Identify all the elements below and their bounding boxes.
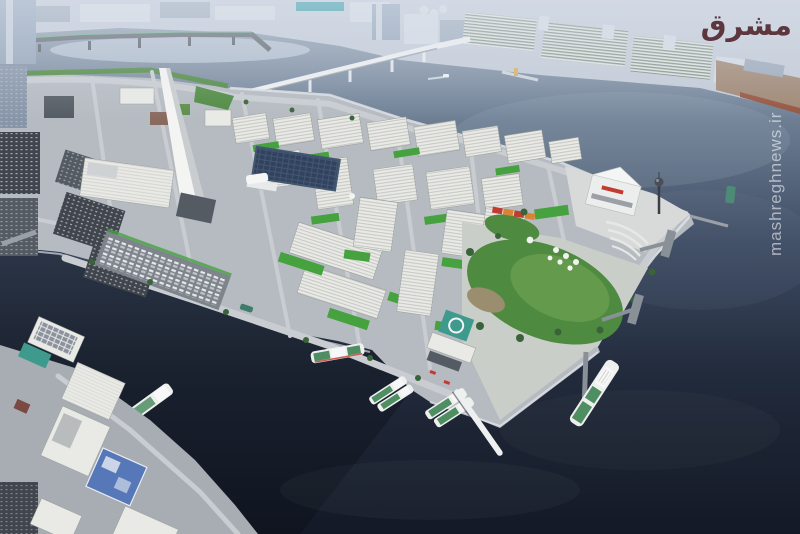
green-barge: [725, 186, 736, 204]
scene-canvas: [0, 0, 800, 534]
watermark-site-url: mashreghnews.ir: [766, 10, 786, 256]
atmospheric-haze: [0, 0, 800, 120]
aerial-photo: مشرق mashreghnews.ir: [0, 0, 800, 534]
